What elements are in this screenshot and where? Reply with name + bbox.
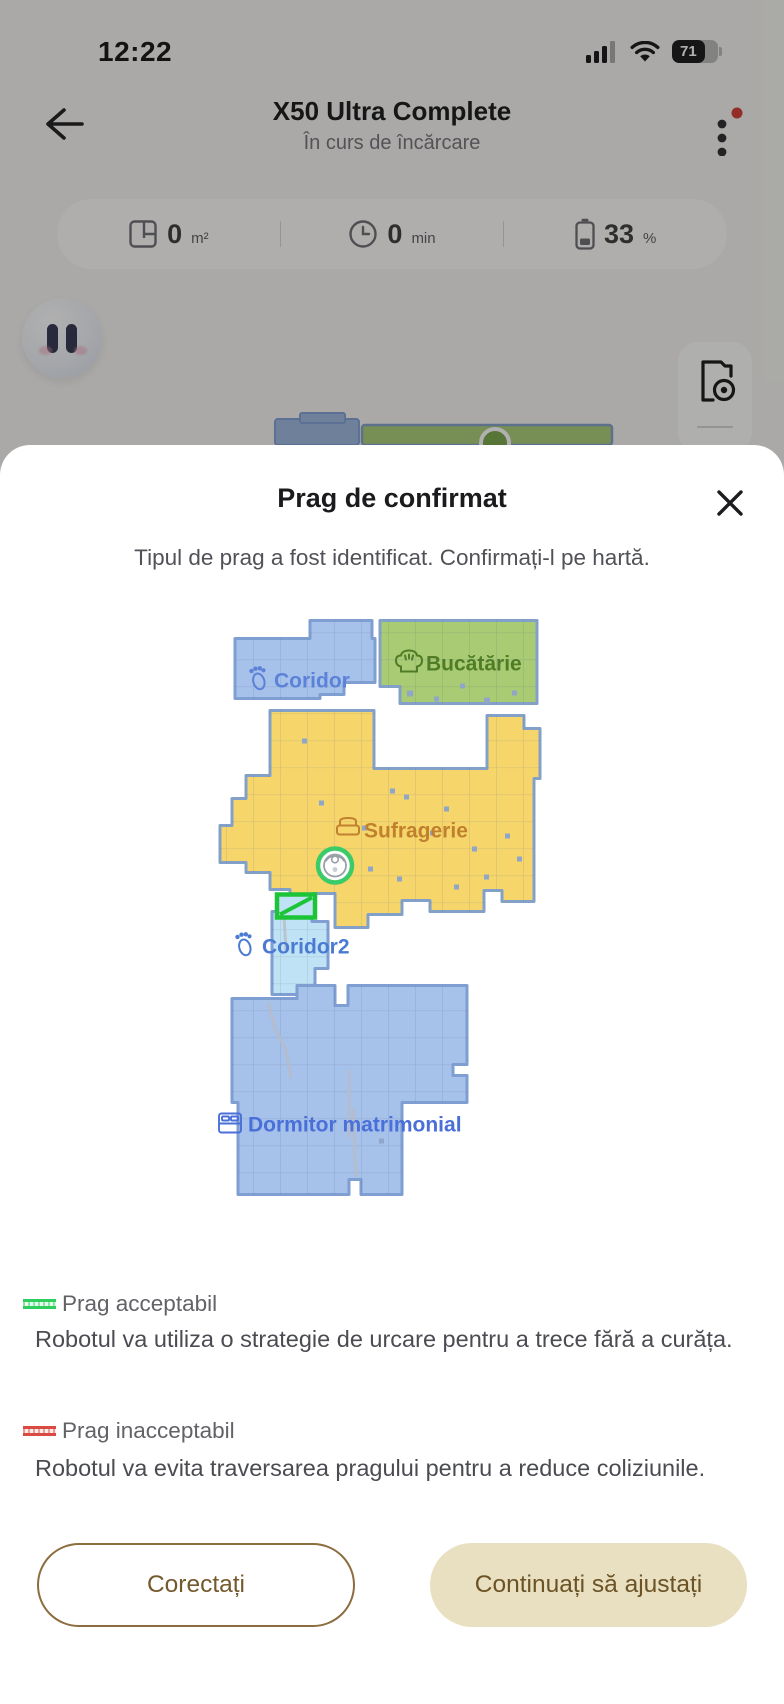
legend-acceptable-label: Prag acceptabil (62, 1291, 217, 1317)
svg-text:Dormitor matrimonial: Dormitor matrimonial (248, 1114, 462, 1137)
legend-unacceptable-label: Prag inacceptabil (62, 1418, 235, 1444)
continue-adjust-button[interactable]: Continuați să ajustați (430, 1543, 747, 1627)
close-button[interactable] (712, 485, 748, 521)
close-icon (712, 485, 748, 521)
label-coridor2: Coridor2 (236, 933, 349, 958)
room-shapes (220, 621, 540, 1195)
legend-unacceptable: Prag inacceptabil (23, 1418, 235, 1444)
legend-acceptable-description: Robotul va utiliza o strategie de urcare… (35, 1317, 735, 1361)
app-screen: 12:22 71 X50 Ultra Complete În curs de î… (0, 0, 784, 1704)
legend-acceptable: Prag acceptabil (23, 1291, 217, 1317)
svg-text:Coridor2: Coridor2 (262, 936, 350, 959)
threshold-marker-acceptable[interactable] (277, 895, 315, 918)
threshold-confirm-sheet: Prag de confirmat Tipul de prag a fost i… (0, 445, 784, 1704)
robot-position-marker (318, 849, 352, 883)
map-container[interactable]: Coridor Bucătărie Sufragerie (172, 577, 562, 1225)
correct-button[interactable]: Corectați (37, 1543, 355, 1627)
red-threshold-swatch (23, 1426, 56, 1436)
label-dormitor: Dormitor matrimonial (219, 1114, 462, 1137)
svg-text:Coridor: Coridor (274, 670, 350, 693)
legend-unacceptable-description: Robotul va evita traversarea pragului pe… (35, 1446, 735, 1490)
sheet-title: Prag de confirmat (0, 483, 784, 514)
sheet-subtitle: Tipul de prag a fost identificat. Confir… (42, 545, 742, 571)
footprint-icon (236, 933, 252, 956)
svg-text:Bucătărie: Bucătărie (426, 653, 522, 676)
floor-map[interactable]: Coridor Bucătărie Sufragerie (172, 577, 562, 1225)
green-threshold-swatch (23, 1299, 56, 1309)
svg-text:Sufragerie: Sufragerie (364, 820, 468, 843)
